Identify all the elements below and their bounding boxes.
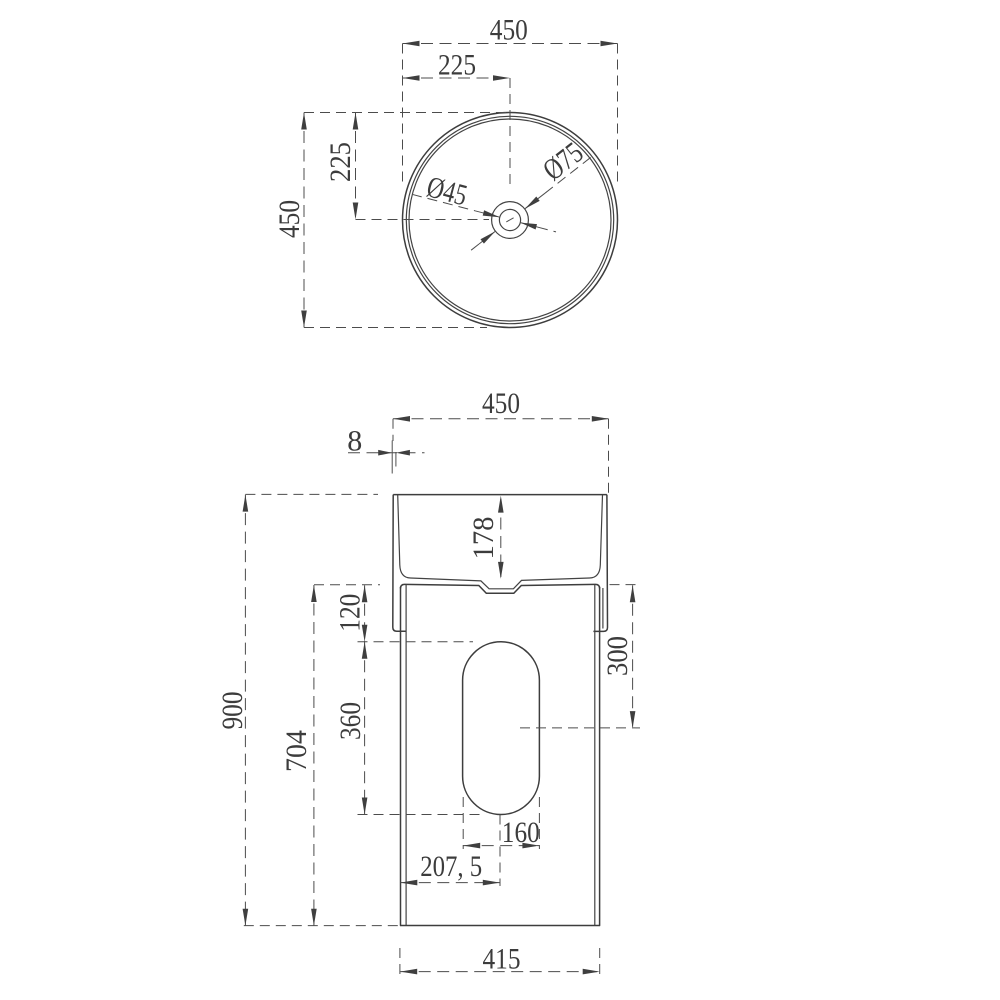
svg-text:704: 704 [280,730,313,772]
svg-text:160: 160 [502,816,540,849]
svg-text:120: 120 [333,594,366,632]
svg-text:900: 900 [216,692,249,730]
svg-text:450: 450 [482,387,520,420]
svg-text:225: 225 [438,49,476,82]
svg-text:300: 300 [601,636,634,676]
svg-text:225: 225 [324,142,357,182]
svg-text:207, 5: 207, 5 [420,850,482,883]
svg-text:8: 8 [347,425,362,458]
svg-text:360: 360 [334,702,367,740]
svg-text:450: 450 [273,200,306,238]
svg-text:178: 178 [467,517,500,560]
svg-text:450: 450 [490,14,528,47]
svg-text:415: 415 [483,943,521,976]
